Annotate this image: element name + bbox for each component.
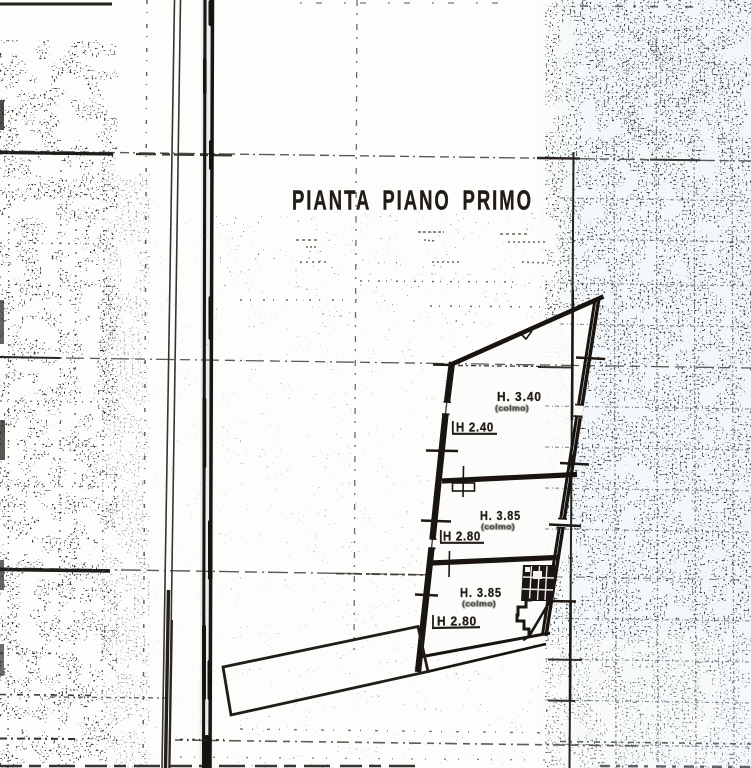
svg-text:PIANTA PIANO PRIMO: PIANTA PIANO PRIMO: [292, 185, 533, 216]
svg-text:(colmo): (colmo): [462, 599, 496, 609]
svg-text:(colmo): (colmo): [481, 522, 515, 532]
svg-text:H 2.80: H 2.80: [443, 530, 481, 544]
svg-text:(colmo): (colmo): [495, 403, 529, 413]
svg-text:H 2.40: H 2.40: [456, 421, 494, 435]
svg-text:H. 3.40: H. 3.40: [497, 390, 542, 404]
